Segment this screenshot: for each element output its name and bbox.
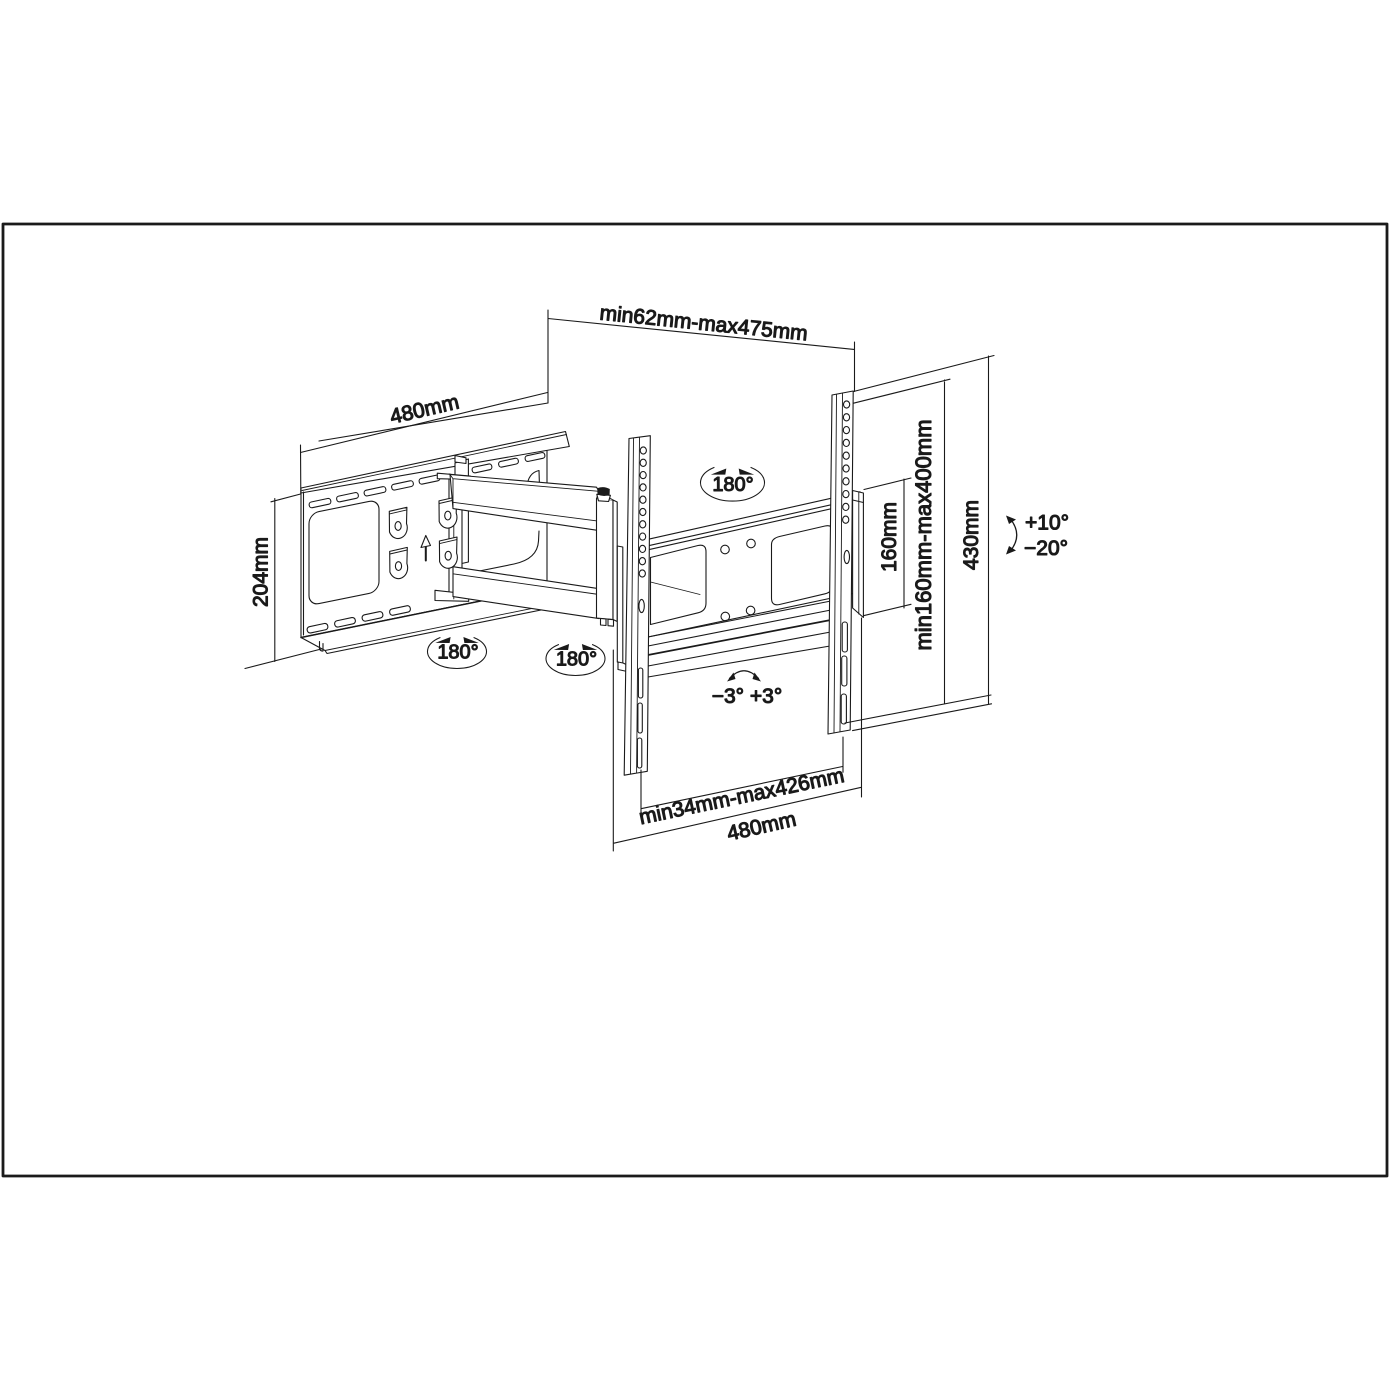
svg-text:480mm: 480mm xyxy=(725,808,798,846)
svg-text:+10°: +10° xyxy=(1025,512,1069,535)
svg-text:min62mm-max475mm: min62mm-max475mm xyxy=(599,302,809,346)
svg-text:min160mm-max400mm: min160mm-max400mm xyxy=(911,419,936,650)
svg-text:160mm: 160mm xyxy=(878,502,901,572)
svg-text:180°: 180° xyxy=(556,649,597,671)
svg-text:430mm: 430mm xyxy=(960,500,983,570)
svg-text:180°: 180° xyxy=(712,474,753,496)
svg-text:204mm: 204mm xyxy=(250,537,273,607)
svg-text:180°: 180° xyxy=(437,642,478,664)
svg-text:−20°: −20° xyxy=(1024,537,1068,560)
svg-text:−3° +3°: −3° +3° xyxy=(712,685,783,708)
